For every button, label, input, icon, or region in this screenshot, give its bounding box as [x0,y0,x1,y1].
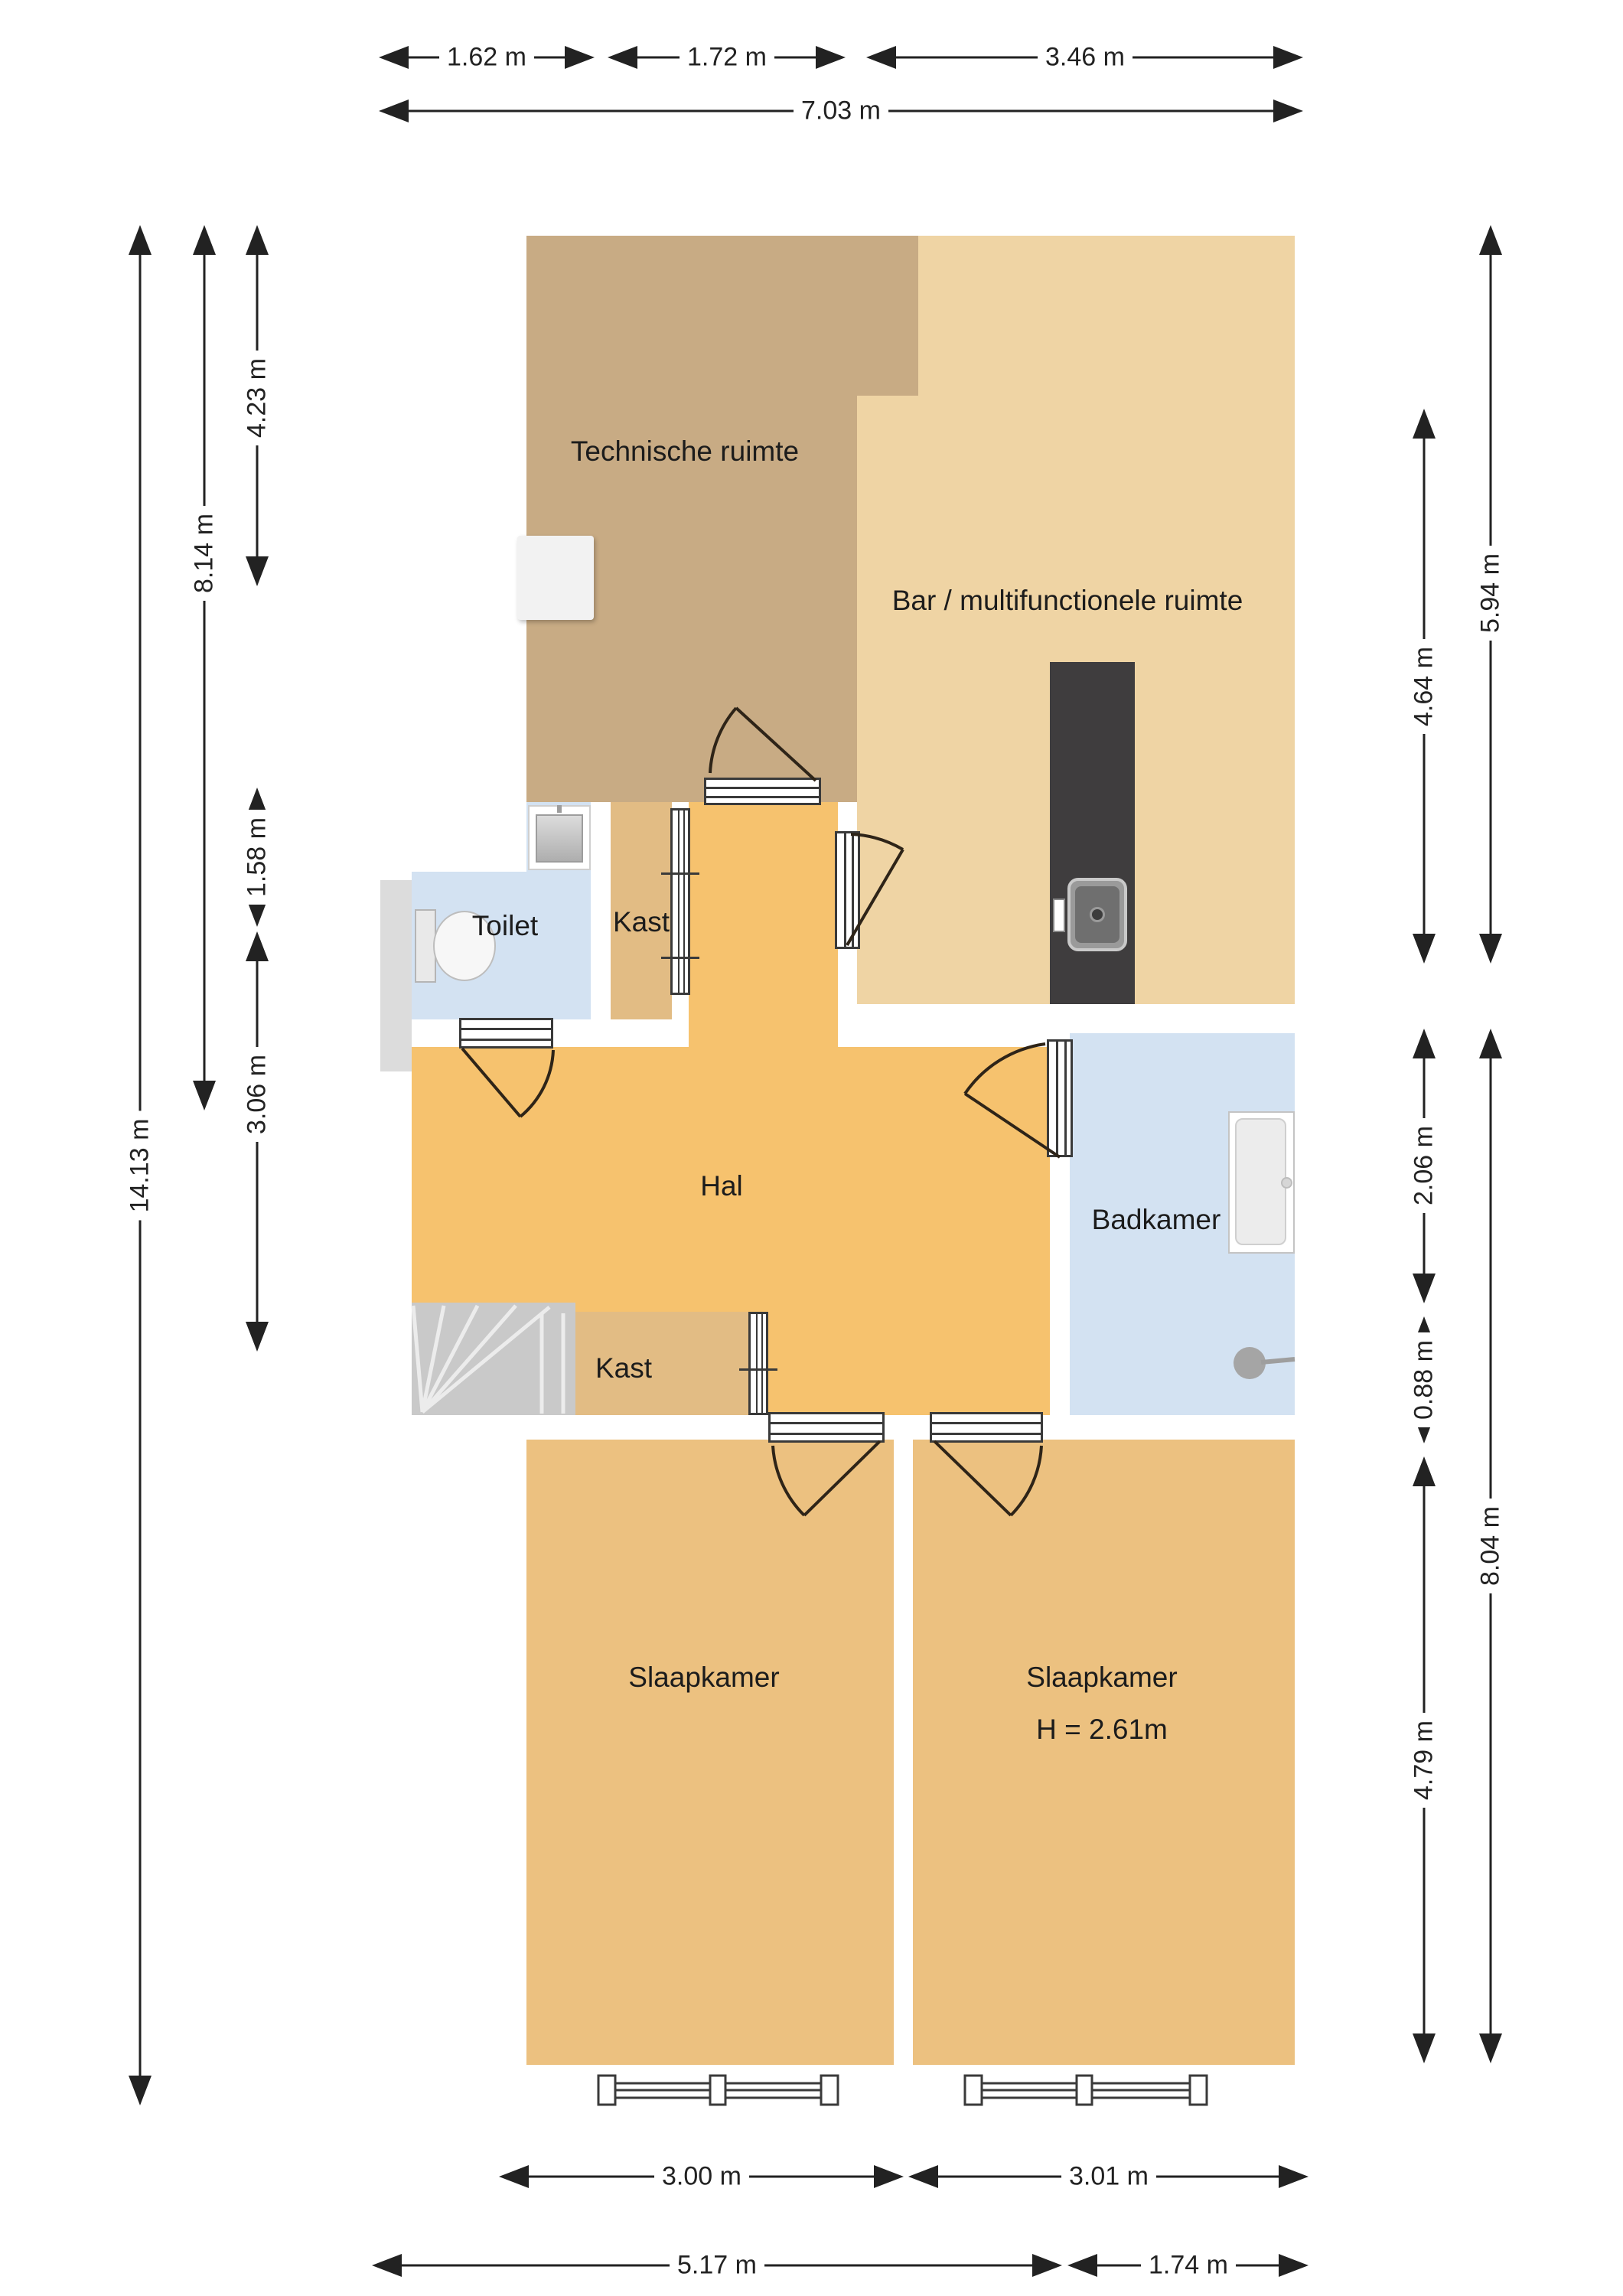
label-slaapkamer-links: Slaapkamer [628,1662,779,1694]
label-hal: Hal [700,1170,743,1202]
dim-left-1: 4.23 m [241,351,274,445]
dim-right-5: 8.04 m [1475,1499,1507,1593]
label-technische-ruimte: Technische ruimte [571,435,799,468]
label-badkamer: Badkamer [1092,1204,1221,1236]
dim-left-3: 3.06 m [241,1047,274,1142]
floor-plan: Technische ruimte Bar / multifunctionele… [0,0,1623,2296]
label-slaapkamer-rechts: Slaapkamer [1026,1662,1177,1694]
dim-bottom-1: 3.00 m [654,2161,749,2193]
shower-arm [1261,1359,1295,1362]
dim-right-1: 5.94 m [1475,546,1507,641]
label-toilet: Toilet [472,910,538,942]
dim-bottom-2: 3.01 m [1061,2161,1156,2193]
door-swings [462,708,1060,1515]
label-kast-onder: Kast [595,1352,652,1384]
dim-left-2: 1.58 m [241,810,274,905]
window-glazing [598,2076,1207,2105]
dim-top-total: 7.03 m [794,95,888,128]
dimension-lines [140,57,1491,2265]
dim-top-3: 3.46 m [1038,41,1133,74]
dim-right-4: 0.88 m [1408,1332,1441,1427]
label-bar: Bar / multifunctionele ruimte [892,585,1243,617]
stairs-treads [413,1306,563,1414]
plan-linework [0,0,1623,2296]
dim-right-2: 4.64 m [1408,639,1441,734]
dim-right-3: 2.06 m [1408,1118,1441,1213]
dim-bottom-4: 1.74 m [1141,2249,1236,2282]
dim-top-1: 1.62 m [439,41,534,74]
dim-right-6: 4.79 m [1408,1713,1441,1808]
label-kast-boven: Kast [613,906,670,938]
label-slaapkamer-height: H = 2.61m [1036,1714,1168,1746]
dim-left-4: 8.14 m [188,506,221,601]
dim-left-5: 14.13 m [124,1111,157,1221]
dim-bottom-3: 5.17 m [670,2249,764,2282]
dim-top-2: 1.72 m [680,41,774,74]
